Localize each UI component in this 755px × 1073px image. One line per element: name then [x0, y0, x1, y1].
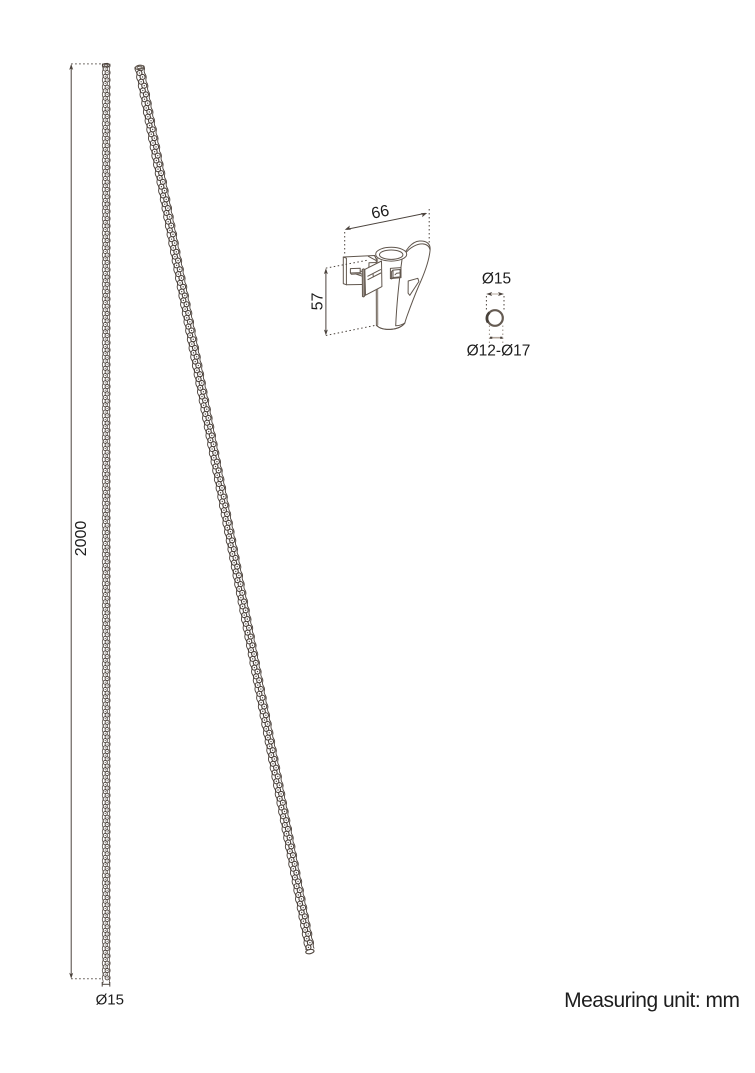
svg-text:2000: 2000 [73, 521, 90, 557]
svg-text:Ø15: Ø15 [482, 271, 511, 288]
svg-text:57: 57 [310, 293, 327, 311]
svg-text:Measuring unit: mm: Measuring unit: mm [564, 989, 739, 1012]
svg-text:Ø15: Ø15 [96, 992, 124, 1009]
svg-text:66: 66 [370, 202, 391, 222]
svg-text:Ø12-Ø17: Ø12-Ø17 [467, 343, 531, 360]
